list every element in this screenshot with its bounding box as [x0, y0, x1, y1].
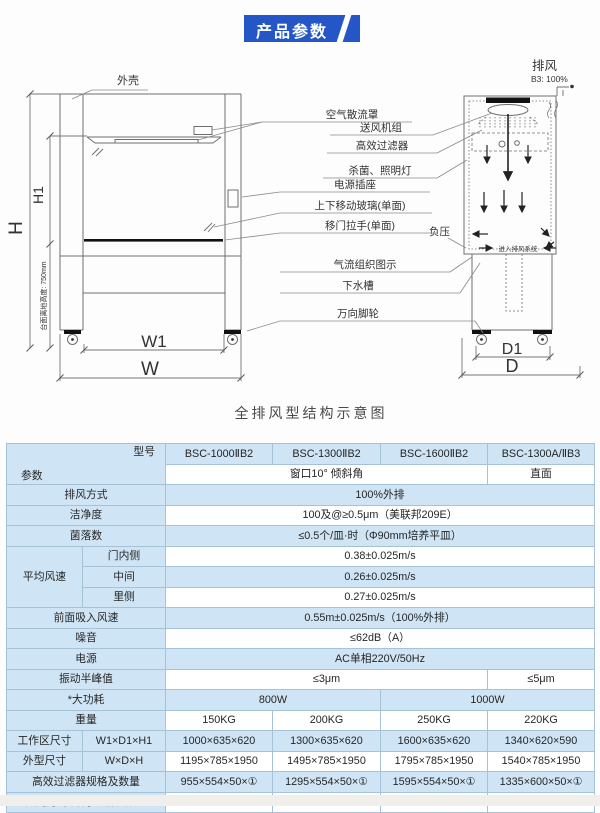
row-value: 800W: [166, 690, 381, 711]
row-value: 250KG: [381, 710, 488, 731]
table-row: 型号 参数 BSC-1000ⅡB2 BSC-1300ⅡB2 BSC-1600ⅡB…: [7, 444, 595, 465]
row-value: 0.26±0.025m/s: [166, 567, 595, 588]
row-label: 排风方式: [7, 485, 166, 506]
diagram-caption: 全排风型结构示意图: [0, 403, 600, 423]
front-view: [60, 94, 262, 345]
part-label-supply-fan: 送风机组: [360, 121, 402, 134]
table-row: 菌落数 ≤0.5个/皿·时（Φ90mm培养平皿）: [7, 526, 595, 547]
window-note: 窗口10° 倾斜角: [166, 464, 488, 485]
airflow-arrows: [473, 114, 556, 248]
table-row: *大功耗 800W 1000W: [7, 690, 595, 711]
table-row: 高效过滤器规格及数量 955×554×50×① 1295×554×50×① 15…: [7, 772, 595, 793]
dim-h1: H1: [30, 186, 46, 204]
table-row: 外型尺寸 W×D×H 1195×785×1950 1495×785×1950 1…: [7, 751, 595, 772]
row-value: 955×554×50×①: [166, 772, 273, 793]
part-label-airflow-diagram: 气流组织图示: [334, 258, 397, 271]
table-row: 噪音 ≤62dB（A）: [7, 628, 595, 649]
row-sublabel: 门内侧: [83, 546, 166, 567]
row-label: 电源: [7, 649, 166, 670]
row-sublabel: 中间: [83, 567, 166, 588]
row-sublabel: 里侧: [83, 587, 166, 608]
row-value: 1295×554×50×①: [273, 772, 381, 793]
table-row: 里侧 0.27±0.025m/s: [7, 587, 595, 608]
row-value: 200KG: [273, 710, 381, 731]
row-label: 平均风速: [7, 546, 83, 608]
row-label: 重量: [7, 710, 166, 731]
row-value: AC单相220V/50Hz: [166, 649, 595, 670]
model-name: BSC-1000ⅡB2: [166, 444, 273, 465]
part-label-sliding-glass: 上下移动玻璃(单面): [315, 199, 406, 212]
row-value: 1495×785×1950: [273, 751, 381, 772]
row-value: ≤62dB（A）: [166, 628, 595, 649]
row-value: 150KG: [166, 710, 273, 731]
row-value: 100及@≥0.5μm（美联邦209E）: [166, 505, 595, 526]
table-row: 振动半峰值 ≤3μm ≤5μm: [7, 669, 595, 690]
row-label: 噪音: [7, 628, 166, 649]
row-value: 1795×785×1950: [381, 751, 488, 772]
dim-w1: W1: [141, 332, 167, 351]
side-view: [464, 85, 574, 345]
part-label-power-socket: 电源插座: [334, 178, 376, 191]
row-value: 0.38±0.025m/s: [166, 546, 595, 567]
row-value: 1595×554×50×①: [381, 772, 488, 793]
row-label: 菌落数: [7, 526, 166, 547]
table-row: 排风方式 100%外排: [7, 485, 595, 506]
table-row: 平均风速 门内侧 0.38±0.025m/s: [7, 546, 595, 567]
row-value: 0.27±0.025m/s: [166, 587, 595, 608]
row-value: 1540×785×1950: [488, 751, 595, 772]
spec-table: 型号 参数 BSC-1000ⅡB2 BSC-1300ⅡB2 BSC-1600ⅡB…: [6, 443, 595, 813]
row-value: 1000W: [381, 690, 595, 711]
part-label-uv-lighting-lamp: 杀菌、照明灯: [349, 164, 412, 177]
row-label: *大功耗: [7, 690, 166, 711]
dim-h: H: [6, 221, 27, 235]
part-label-hepa-filter: 高效过滤器: [356, 139, 409, 152]
page: { "theme":{"badge_blue":"#2456c7","table…: [0, 0, 600, 806]
table-row: 前面吸入风速 0.55m±0.025m/s（100%外排）: [7, 608, 595, 629]
dim-d: D: [506, 356, 519, 376]
callout-labels: 空气散流罩 送风机组 高效过滤器 杀菌、照明灯 电源插座 上下移动玻璃(单面) …: [315, 108, 412, 320]
row-sublabel: W×D×H: [83, 751, 166, 772]
model-name: BSC-1300A/ⅡB3: [488, 444, 595, 465]
exhaust-label: 排风: [532, 59, 558, 73]
row-value: 1300×635×620: [273, 731, 381, 752]
row-label: 工作区尺寸: [7, 731, 83, 752]
row-value: ≤3μm: [166, 669, 488, 690]
header-model-label: 型号: [133, 446, 155, 458]
row-label: 外型尺寸: [7, 751, 83, 772]
row-label: 前面吸入风速: [7, 608, 166, 629]
header-param-label: 参数: [21, 470, 43, 482]
exhaust-value: B3: 100%: [531, 74, 568, 84]
structure-diagram: H H1 台面离地高度: 750mm W1 W 外壳: [0, 0, 600, 430]
row-value: ≤0.5个/皿·时（Φ90mm培养平皿）: [166, 526, 595, 547]
dim-height-note: 台面离地高度: 750mm: [39, 261, 48, 330]
row-sublabel: W1×D1×H1: [83, 731, 166, 752]
model-name: BSC-1600ⅡB2: [381, 444, 488, 465]
footer-strip: [0, 795, 600, 806]
table-row: 重量 150KG 200KG 250KG 220KG: [7, 710, 595, 731]
header-diagonal-cell: 型号 参数: [7, 444, 166, 485]
part-label-caster: 万向脚轮: [337, 307, 379, 320]
table-row: 中间 0.26±0.025m/s: [7, 567, 595, 588]
table-row: 电源 AC单相220V/50Hz: [7, 649, 595, 670]
negative-pressure-leader: [448, 238, 466, 248]
shell-label: 外壳: [117, 73, 139, 87]
row-value: 0.55m±0.025m/s（100%外排）: [166, 608, 595, 629]
part-label-door-handle: 移门拉手(单面): [325, 219, 395, 232]
row-value: 1600×635×620: [381, 731, 488, 752]
row-value: ≤5μm: [488, 669, 595, 690]
part-label-drain-sink: 下水槽: [342, 280, 374, 292]
row-label: 高效过滤器规格及数量: [7, 772, 166, 793]
row-value: 220KG: [488, 710, 595, 731]
model-name: BSC-1300ⅡB2: [273, 444, 381, 465]
row-value: 1195×785×1950: [166, 751, 273, 772]
row-value: 1000×635×620: [166, 731, 273, 752]
dim-w: W: [141, 359, 159, 380]
row-label: 振动半峰值: [7, 669, 166, 690]
row-label: 洁净度: [7, 505, 166, 526]
table-row: 洁净度 100及@≥0.5μm（美联邦209E）: [7, 505, 595, 526]
row-value: 100%外排: [166, 485, 595, 506]
row-value: 1335×600×50×①: [488, 772, 595, 793]
table-row: 工作区尺寸 W1×D1×H1 1000×635×620 1300×635×620…: [7, 731, 595, 752]
row-value: 1340×620×590: [488, 731, 595, 752]
part-label-air-diffuser: 空气散流罩: [326, 108, 379, 121]
negative-pressure-label: 负压: [429, 225, 450, 238]
enter-exhaust-label: 进入排风系统: [499, 244, 539, 253]
front-note: 直面: [488, 464, 595, 485]
